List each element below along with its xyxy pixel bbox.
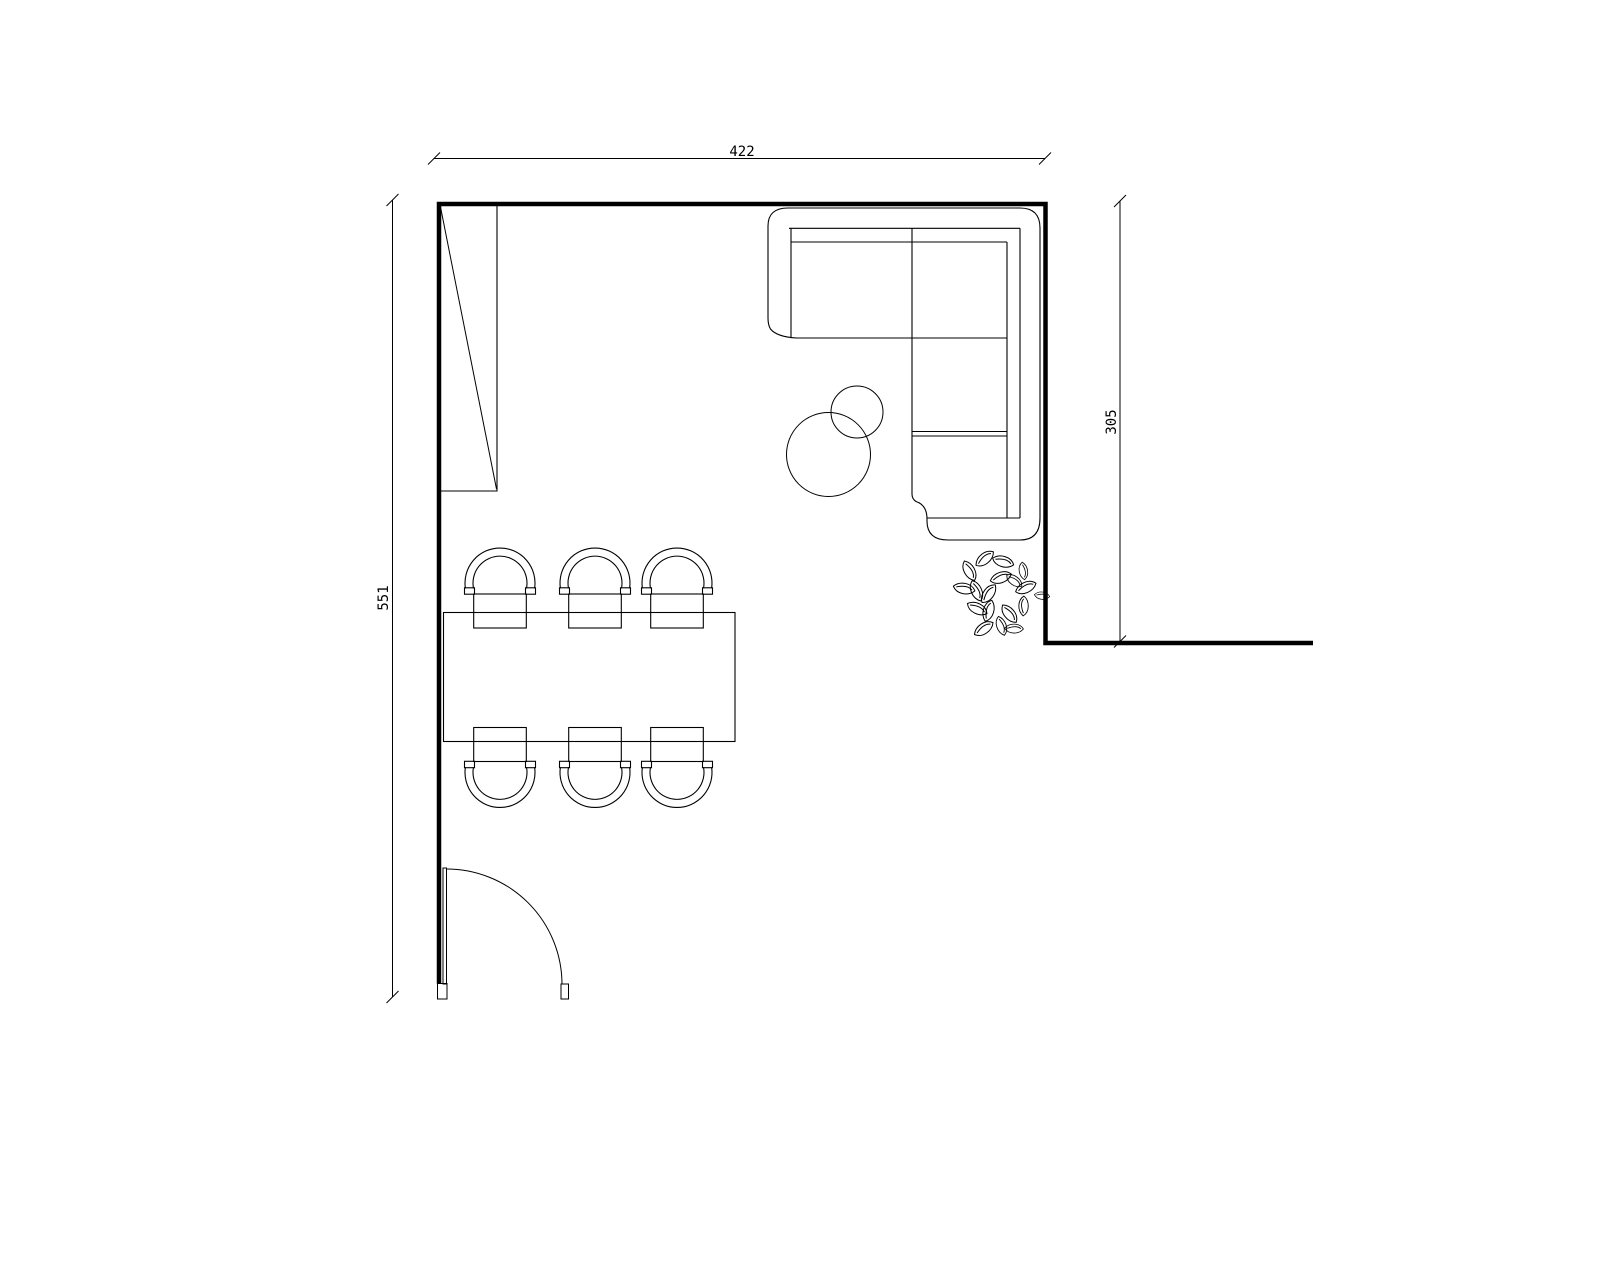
door-jamb [438,984,448,1000]
door-jamb [561,984,569,999]
dimension-top: 422 [428,144,1051,165]
floor-plan-page: 422 551 305 [0,0,1600,1280]
tall-cabinet [439,206,497,491]
dining-chair [642,548,713,628]
leaf-icon [968,579,985,603]
door-arc [447,869,563,985]
dining-chair [560,728,631,808]
dining-table [444,613,736,742]
door-leaf [443,868,447,984]
leaf-icon [1004,623,1023,634]
dining-set [444,548,736,807]
floor-plan-drawing: 422 551 305 [0,0,1600,1280]
leaf-icon [972,618,996,638]
dimension-top-label: 422 [729,144,754,160]
dining-chair [465,728,536,808]
dimension-left-label: 551 [376,585,392,610]
leaf-icon [1014,579,1038,596]
leaf-icon [989,570,1013,586]
dimension-left: 551 [376,194,399,1003]
sectional-sofa [768,208,1040,540]
leaf-icon [1034,591,1050,601]
dimension-right: 305 [1104,195,1126,648]
dining-chair [560,548,631,628]
leaf-icon [991,553,1015,570]
round-side-table-large [787,413,871,497]
dimension-right-label: 305 [1104,409,1120,434]
sofa-outline [768,208,1040,540]
cabinet-diagonal [441,207,497,489]
leaf-icon [1018,596,1029,617]
potted-plant [952,548,1050,639]
round-side-table-small [831,386,883,438]
dining-chair [642,728,713,808]
dining-chair [465,548,536,628]
leaf-icon [1018,562,1028,580]
side-tables [787,386,884,497]
door-swing [438,868,569,999]
